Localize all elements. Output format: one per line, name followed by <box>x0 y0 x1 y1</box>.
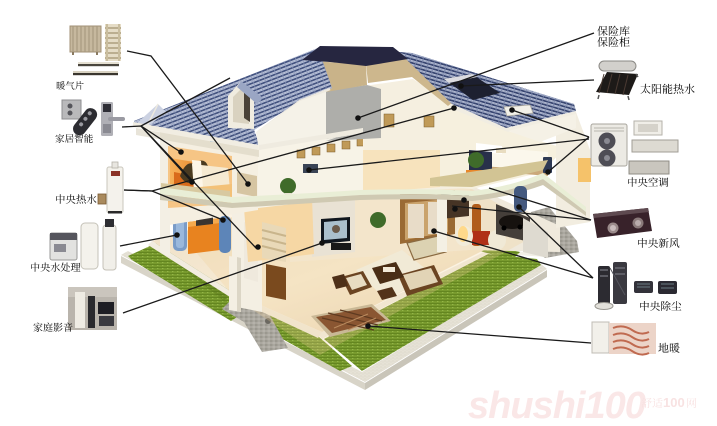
svg-text:100: 100 <box>663 395 685 410</box>
svg-text:shushi100: shushi100 <box>468 385 646 426</box>
